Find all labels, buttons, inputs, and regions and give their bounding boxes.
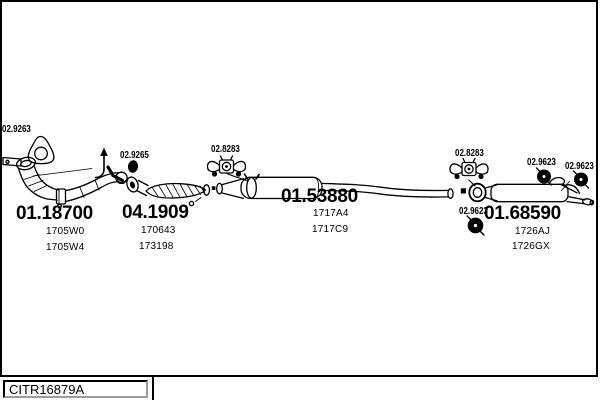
- assembly-ref: 1717A4: [313, 208, 349, 219]
- part-label-hanger-rear: 02.8283: [455, 148, 484, 159]
- rear-muffler: [469, 178, 579, 202]
- bolt-icon: [212, 186, 216, 190]
- assembly-code-catalyst: 04.1909: [122, 203, 189, 223]
- front-pipe: [3, 156, 148, 208]
- grommet-icon: [574, 171, 589, 188]
- assembly-ref: 1726GX: [512, 241, 550, 252]
- mount-bracket-icon: [33, 148, 123, 181]
- part-label-gasket: 02.9263: [2, 124, 31, 135]
- part-label-grommet-1: 02.9623: [527, 157, 556, 168]
- assembly-ref: 1705W0: [46, 226, 84, 237]
- rubber-hanger-icon: [450, 159, 488, 180]
- grommet-icon: [537, 168, 552, 185]
- diagram-reference-box: CITR16879A: [3, 380, 148, 398]
- assembly-ref: 173198: [139, 241, 174, 252]
- assembly-ref: 1705W4: [46, 242, 84, 253]
- gasket-icon: [28, 137, 54, 164]
- exhaust-parts-diagram: 02.9263 02.9265 02.8283 02.8283 02.9623 …: [0, 0, 600, 400]
- assembly-ref: 1717C9: [312, 224, 348, 235]
- grommet-icon: [467, 216, 484, 235]
- clamp-icon: [128, 160, 138, 172]
- assembly-code-front-pipe: 01.18700: [16, 204, 93, 224]
- assembly-code-centre-muffler: 01.53880: [281, 187, 358, 207]
- assembly-ref: 1726AJ: [515, 226, 550, 237]
- part-label-grommet-2: 02.9623: [565, 161, 594, 172]
- part-label-clamp: 02.9265: [120, 150, 149, 161]
- assembly-ref: 170643: [141, 225, 176, 236]
- part-label-hanger-front: 02.8283: [211, 144, 240, 155]
- assembly-code-rear-muffler: 01.68590: [484, 204, 561, 224]
- tail-pipe-tip: [567, 197, 594, 206]
- bolt-icon: [461, 188, 466, 193]
